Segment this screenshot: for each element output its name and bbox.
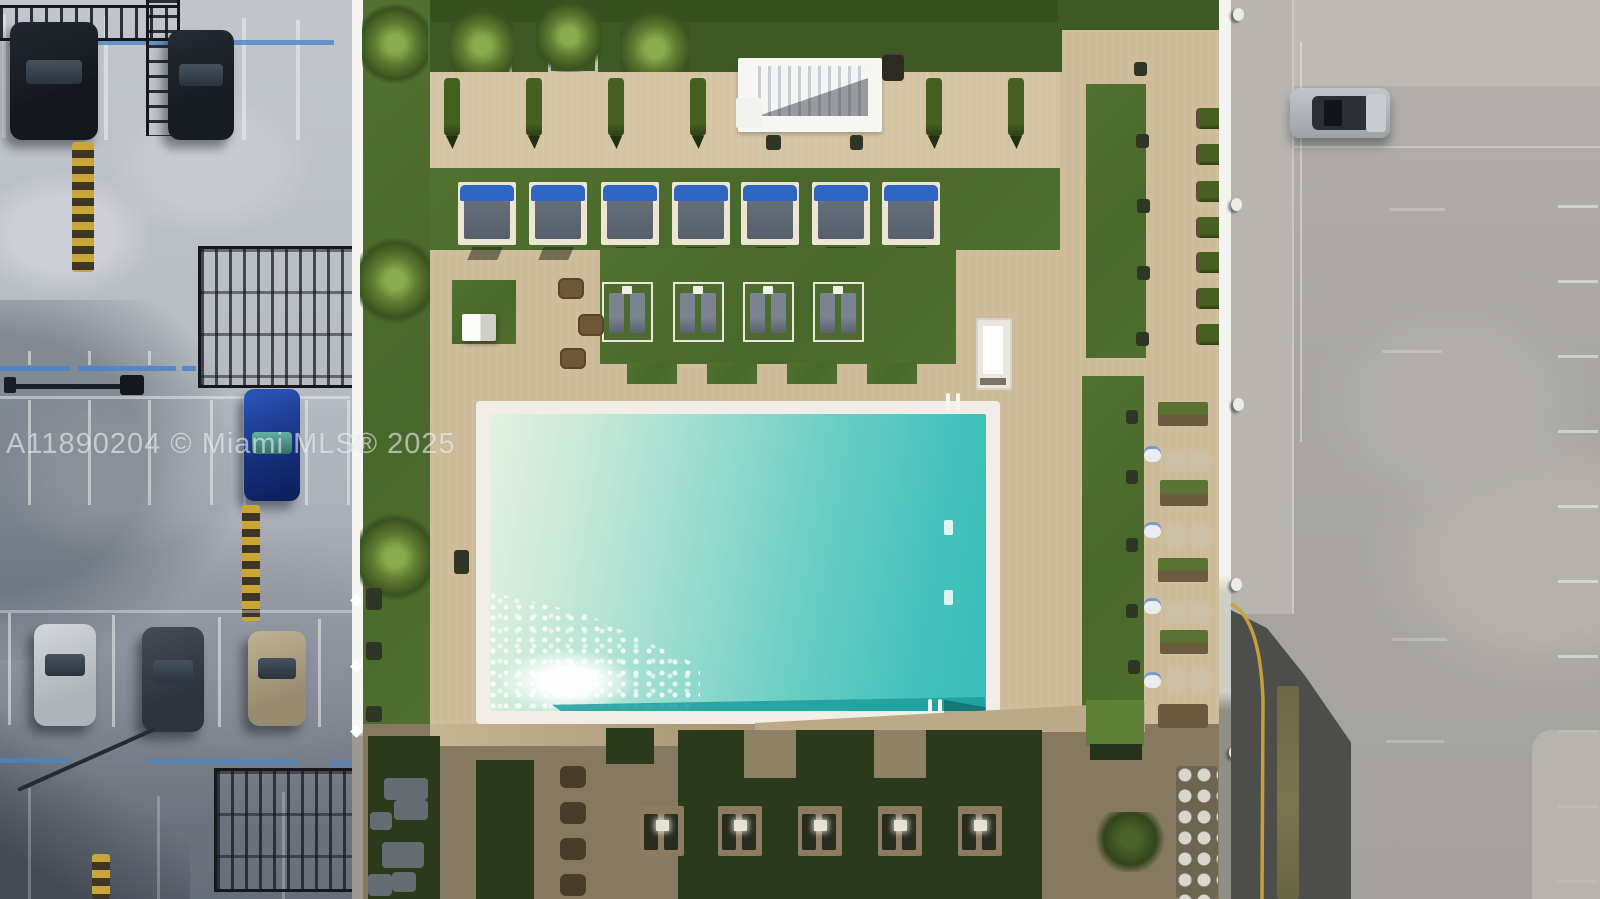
planter-box — [1158, 402, 1208, 426]
towel-bundle — [1144, 672, 1161, 688]
lot-stripe — [1558, 280, 1598, 283]
shrub — [1126, 604, 1138, 618]
speed-bump — [242, 505, 260, 621]
accessible-stripe — [0, 758, 70, 763]
parking-stripe — [8, 613, 11, 725]
cabana-daybed — [458, 182, 516, 245]
shaded-lounger-pad — [878, 806, 922, 856]
wicker-ottoman — [558, 278, 584, 299]
cabana-shadow — [467, 247, 502, 260]
shaded-turf-tooth — [606, 728, 654, 764]
lounge-chair — [1190, 450, 1211, 471]
pool-depth-marker — [944, 590, 953, 605]
lot-stripe — [1382, 350, 1442, 353]
lot-stripe — [1558, 580, 1598, 583]
bollard-light — [1233, 398, 1244, 411]
outdoor-shower-base — [980, 378, 1006, 385]
palm-tree — [360, 238, 430, 332]
concrete-patch — [1532, 730, 1600, 899]
towel-bundle — [1144, 598, 1161, 614]
lot-stripe — [1558, 205, 1598, 208]
grass-verge — [1277, 686, 1299, 899]
shaded-paver-notch — [874, 730, 926, 778]
trash-bin — [766, 135, 781, 150]
lounge-chair — [1190, 526, 1211, 547]
shrub — [1126, 410, 1138, 424]
turf-inset-east — [1086, 84, 1146, 358]
accessible-stripe — [148, 759, 240, 764]
parking-stripe — [157, 796, 160, 899]
outdoor-sofa — [392, 872, 416, 892]
shaded-turf-column — [476, 760, 534, 899]
palm-tree — [362, 4, 428, 92]
lot-stripe — [1558, 505, 1598, 508]
palm-tree-shaded — [1092, 812, 1168, 872]
gate-arm-bracket — [4, 377, 16, 393]
ottoman-shaded — [560, 838, 586, 860]
wicker-ottoman — [578, 314, 604, 336]
speed-bump — [92, 854, 110, 899]
parking-stripe — [218, 617, 221, 727]
shrub — [1136, 134, 1149, 148]
equipment-cage-fence — [198, 246, 358, 388]
cabana-daybed — [601, 182, 659, 245]
mls-watermark: A11890204 © Miami MLS® 2025 — [6, 428, 456, 461]
ottoman-shaded — [560, 874, 586, 896]
accessible-stripe — [330, 761, 352, 766]
curb-walk-strip — [1231, 0, 1294, 614]
cabana-daybed — [812, 182, 870, 245]
turf-band-north-dark-edge — [430, 0, 1062, 22]
parking-stripe — [112, 615, 115, 727]
hedge-shadowed — [1090, 744, 1142, 760]
gate-arm-motor — [120, 375, 144, 395]
cabana-daybed — [882, 182, 940, 245]
towel-cart — [462, 314, 496, 341]
stepping-stones — [1176, 766, 1218, 899]
outdoor-sofa — [382, 842, 424, 868]
cabana-daybed — [741, 182, 799, 245]
lot-stripe — [1558, 655, 1598, 658]
hedge-planter — [444, 78, 460, 136]
shrub — [1126, 538, 1138, 552]
pool-side-bin — [454, 550, 469, 574]
parking-tick — [28, 351, 31, 365]
bollard-light — [1231, 578, 1242, 591]
suv-sunroof — [1324, 100, 1342, 126]
hedge-planter — [608, 78, 624, 136]
shaded-lounger-pad — [640, 806, 684, 856]
lounger-pad — [813, 282, 864, 342]
shaded-lounger-pad — [958, 806, 1002, 856]
lounge-chair — [1190, 670, 1211, 691]
hedge-planter — [690, 78, 706, 136]
trash-bin — [850, 135, 863, 150]
shrub — [1134, 62, 1147, 76]
cabana-shadow — [538, 247, 573, 260]
parking-stripe — [318, 619, 321, 727]
lot-stripe — [1392, 638, 1447, 641]
outdoor-sofa — [368, 874, 392, 896]
parking-tick — [88, 351, 91, 365]
cabana-daybed — [529, 182, 587, 245]
aerial-photo-scene: A11890204 © Miami MLS® 2025 — [0, 0, 1600, 899]
car-windshield — [45, 654, 85, 676]
outdoor-sofa — [384, 778, 428, 800]
pool-ladder — [946, 393, 950, 411]
turf-strip-west — [363, 0, 430, 738]
shrub — [366, 588, 382, 610]
shrub — [1137, 266, 1150, 280]
towel-bundle — [1144, 522, 1161, 538]
shaded-lounger-pad — [718, 806, 762, 856]
lot-stripe — [1558, 355, 1598, 358]
stair-railing-fence — [214, 768, 360, 892]
bench-planter — [1158, 704, 1208, 728]
pool-ladder — [956, 393, 960, 411]
turf-corner-northeast — [1058, 0, 1220, 30]
suv-hood — [1366, 94, 1386, 132]
parking-stripe — [296, 20, 300, 140]
planter-box — [1158, 558, 1208, 582]
accessible-stripe — [78, 366, 176, 371]
shrub — [1137, 199, 1150, 213]
shaded-lounger-pad — [798, 806, 842, 856]
outdoor-sofa — [370, 812, 392, 830]
shrub — [1126, 470, 1138, 484]
hedge-planter — [526, 78, 542, 136]
lot-stripe — [1386, 740, 1444, 743]
wicker-ottoman — [560, 348, 586, 369]
lot-stripe — [1390, 208, 1445, 211]
turf-tooth — [707, 362, 757, 384]
car-windshield — [258, 658, 296, 679]
lounge-chair — [1166, 450, 1187, 471]
deck-east-wall — [1219, 0, 1231, 899]
parking-stripe — [28, 788, 31, 899]
car-windshield — [179, 64, 223, 86]
palm-tree — [536, 0, 602, 80]
shrub — [366, 642, 382, 660]
lounge-chair — [1190, 602, 1211, 623]
turf-tooth — [627, 362, 677, 384]
lit-turf-square — [1086, 700, 1144, 746]
accessible-stripe — [182, 366, 196, 371]
car-windshield — [153, 660, 193, 683]
shrub — [366, 706, 382, 722]
shrub — [1128, 660, 1140, 674]
hedge-planter — [1008, 78, 1024, 136]
planter-box — [1160, 480, 1208, 506]
turf-tooth — [867, 362, 917, 384]
accessible-stripe — [236, 760, 298, 765]
car-windshield — [26, 60, 82, 84]
towel-bundle — [1144, 446, 1161, 462]
parking-line — [0, 610, 352, 613]
lounge-chair — [1166, 670, 1187, 691]
cabana-daybed — [672, 182, 730, 245]
lounger-pad — [673, 282, 724, 342]
pool-depth-marker — [944, 520, 953, 535]
outdoor-shower-interior — [983, 326, 1003, 374]
speed-bump — [72, 142, 94, 272]
planter-box — [1160, 630, 1208, 654]
shaded-paver-notch — [744, 730, 796, 778]
hedge-planter — [926, 78, 942, 136]
lounger-pad — [743, 282, 794, 342]
bollard-light — [1233, 8, 1244, 21]
lot-stripe — [1558, 430, 1598, 433]
bollard-light — [1231, 198, 1242, 211]
lounge-chair — [1166, 602, 1187, 623]
parking-stripe — [242, 18, 246, 140]
outdoor-sofa — [394, 800, 428, 820]
turf-tooth — [787, 362, 837, 384]
ottoman-shaded — [560, 766, 586, 788]
parking-tick — [148, 351, 151, 365]
stair-landing — [736, 98, 762, 128]
lounge-chair — [1166, 526, 1187, 547]
lounger-pad — [602, 282, 653, 342]
shrub — [1136, 332, 1149, 346]
pavement-seam — [1294, 146, 1600, 148]
ottoman-shaded — [560, 802, 586, 824]
accessible-stripe — [0, 366, 70, 371]
grill-station — [882, 53, 904, 81]
gate-arm — [10, 384, 124, 389]
